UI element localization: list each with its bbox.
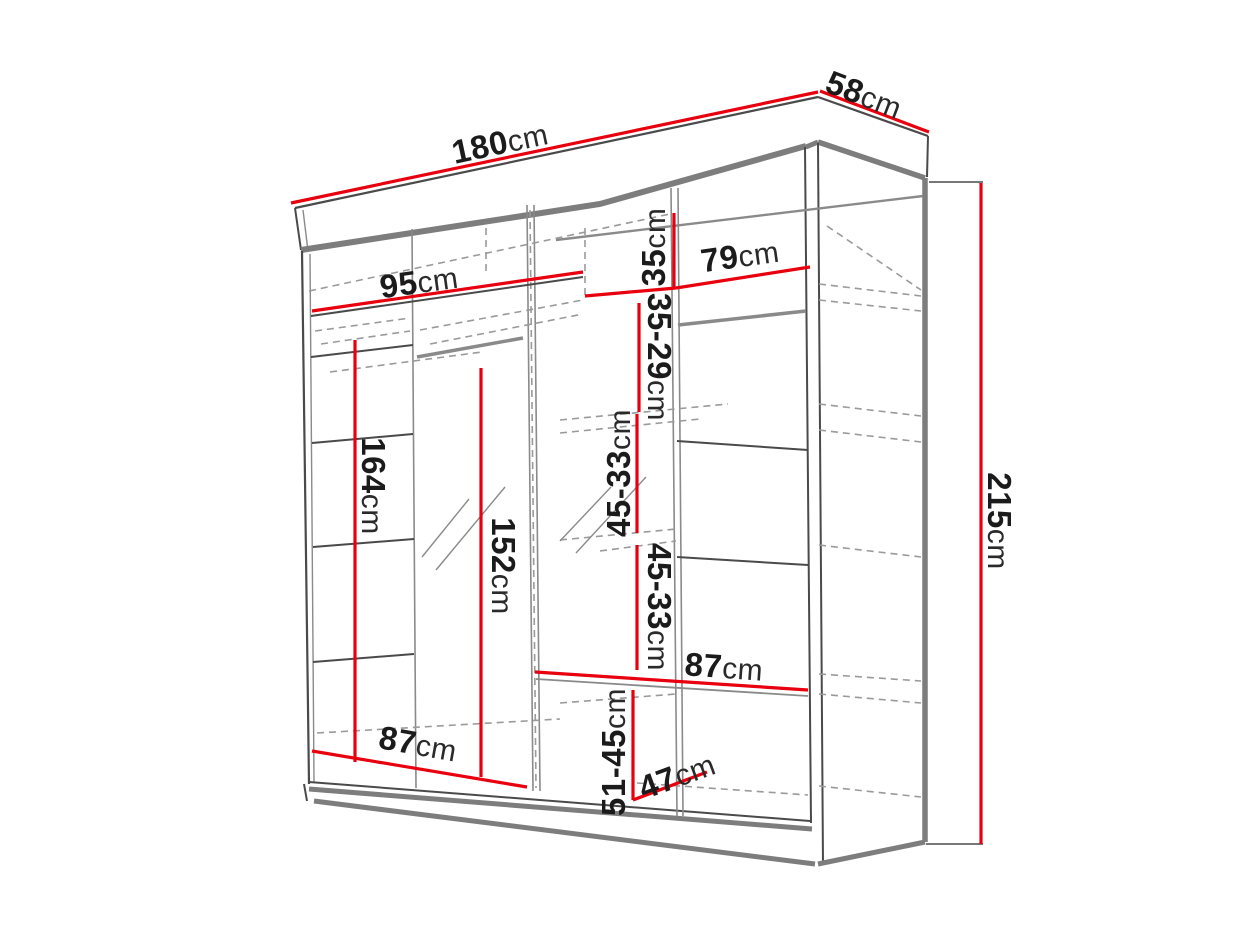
hidden-edge-side-3 [819,404,921,416]
label-width-87-left: 87cm [376,718,460,768]
front-right-post-right-line [818,143,823,864]
label-depth-58: 58cm [821,63,908,126]
top-panel-front-corner-jog [806,142,818,147]
mirror-stroke-left-a [422,499,469,557]
top-panel-left-edge [295,208,301,250]
left-front-edge [302,251,309,784]
label-height-35-29: 35-29cm [641,293,678,421]
side-panel-bottom-edge [818,842,925,864]
right-column-shelf-1 [677,441,808,450]
top-panel-back-edge [295,97,818,208]
hanging-rod-left [417,338,523,357]
hanging-rod-right [678,311,806,325]
partition-left [412,229,416,788]
hidden-edge-side-5 [819,545,921,557]
label-height-35: 35cm [635,208,672,287]
label-height-215: 215cm [981,472,1018,570]
dim-line-width-180 [291,92,818,203]
left-front-inner-edge [310,254,314,782]
hidden-edge-side-4 [819,430,921,442]
height-dimension-bracket [926,182,983,844]
hidden-edge-side-6 [819,674,921,681]
label-height-164: 164cm [355,437,392,535]
side-panel-top-edge [818,142,925,178]
partition-center-line-a [527,205,533,791]
left-column-shelf-1 [311,345,413,357]
label-height-45-33-b: 45-33cm [641,543,678,671]
wardrobe-dimension-diagram: 180cm 58cm 215cm 95cm 79cm 35cm 35-29cm … [0,0,1246,934]
top-panel-right-edge [927,136,928,177]
left-column-shelf-3 [313,539,414,547]
label-height-152: 152cm [485,517,522,615]
hidden-edge-rod-left-b [321,331,410,344]
bottom-panel-front-edge [309,782,810,821]
label-width-95: 95cm [377,258,460,306]
top-panel-left-inner-edge [303,210,308,251]
hidden-edge-ceiling-back [309,214,670,291]
left-foot-edge [304,784,307,801]
front-right-post-left-line [805,147,811,823]
label-width-87-right: 87cm [683,645,764,687]
hidden-edge-side-2 [819,300,921,311]
left-column-shelf-4 [313,654,414,662]
hidden-edge-side-1 [819,284,921,296]
label-height-45-33-a: 45-33cm [600,409,637,537]
hidden-edge-rod-mid [330,352,482,372]
partition-right-line-b [678,188,683,816]
hidden-edge-side-diagonal [827,226,921,290]
hidden-edge-top-shelf-back-a [420,300,583,330]
hidden-edge-rod-left-a [315,318,410,331]
right-column-shelf-2 [677,557,808,565]
diagram-canvas: 180cm 58cm 215cm 95cm 79cm 35cm 35-29cm … [0,0,1246,934]
top-panel-front-edge [301,146,806,250]
label-height-51-45: 51-45cm [595,688,632,816]
hidden-edge-side-8 [819,786,921,797]
hidden-edge-side-7 [819,694,921,703]
label-width-180: 180cm [448,114,551,170]
